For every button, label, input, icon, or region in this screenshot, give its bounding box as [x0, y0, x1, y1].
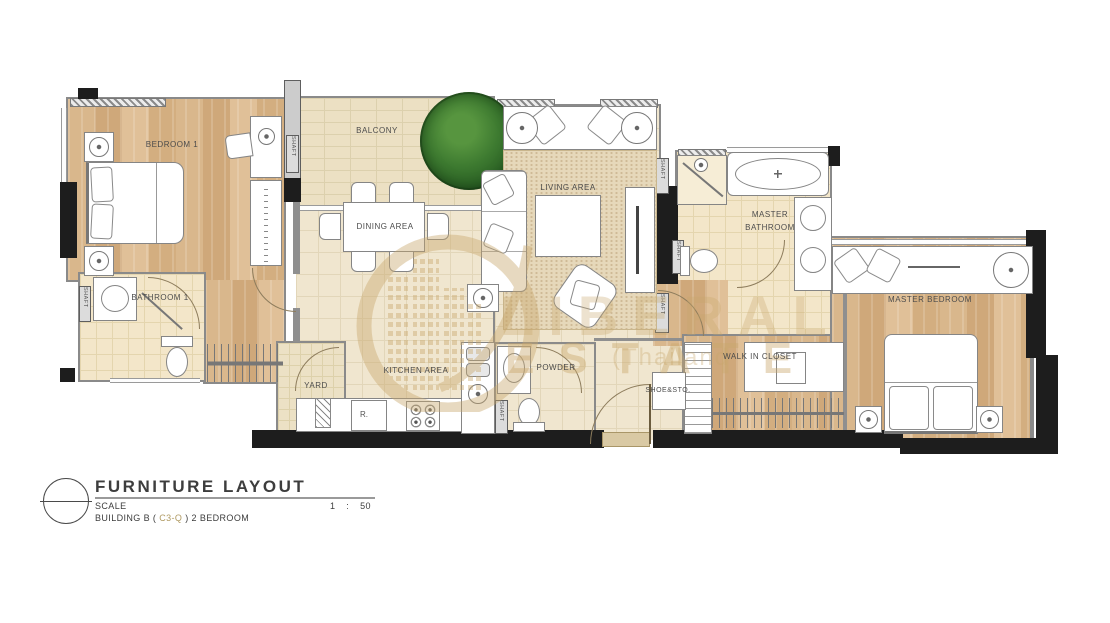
- tv-screen: [636, 206, 639, 274]
- table-lamp: [89, 137, 109, 157]
- desk-lamp: [258, 128, 275, 145]
- wall-mass-bottom: [900, 438, 1052, 454]
- bed-linen-line: [885, 382, 977, 383]
- room-label-powder: POWDER: [537, 363, 576, 372]
- bed-linen-line: [156, 163, 157, 243]
- room-label-living: LIVING AREA: [540, 183, 595, 192]
- room-label-master-bedroom: MASTER BEDROOM: [888, 295, 972, 304]
- shaft-label: SHAFT: [290, 136, 296, 157]
- kitchen-sink: [466, 363, 490, 377]
- dining-chair: [389, 182, 414, 203]
- toilet-tank: [161, 336, 193, 347]
- wall-mass-right: [1036, 355, 1058, 454]
- dining-chair: [351, 251, 376, 272]
- coffee-table: [535, 195, 601, 257]
- pillow: [889, 386, 929, 430]
- wall: [594, 338, 682, 341]
- shaft-box: SHAFT: [286, 135, 299, 173]
- table-lamp: [859, 410, 878, 429]
- wall-mass: [828, 146, 840, 166]
- floor-plan-canvas: SHAFT SHAFT SHAFT SHAFT SHAFT SHAFT: [0, 0, 1110, 623]
- shaft-box: SHAFT: [79, 286, 91, 322]
- refrigerator-label: R.: [360, 410, 368, 419]
- wardrobe-hanging-symbol: [264, 184, 268, 262]
- wall: [293, 308, 300, 342]
- wall-mass: [284, 178, 301, 202]
- kitchen-sink: [466, 347, 490, 361]
- room-label-bedroom1: BEDROOM 1: [146, 140, 199, 149]
- wall-mass-bottom: [252, 430, 604, 448]
- drawing-title: FURNITURE LAYOUT: [95, 477, 306, 497]
- side-table-round: [506, 112, 538, 144]
- title-block-symbol: [43, 478, 89, 524]
- dining-chair: [319, 213, 341, 240]
- wall: [293, 200, 300, 274]
- sink-basin: [800, 205, 826, 231]
- bedroom1-window: [61, 108, 67, 186]
- pillow: [90, 203, 114, 239]
- wall-mass: [60, 368, 75, 382]
- toilet-tank: [680, 246, 690, 276]
- shaft-label: SHAFT: [659, 159, 665, 180]
- wall-mass: [78, 88, 98, 99]
- room-label-bathroom1: BATHROOM 1: [131, 293, 188, 302]
- toilet-bowl: [166, 347, 188, 377]
- room-label-walk-in-closet: WALK IN CLOSET: [723, 352, 797, 361]
- building-info: BUILDING B ( C3-Q ) 2 BEDROOM: [95, 513, 249, 523]
- closet-hanging-rail: [712, 398, 844, 428]
- room-label-master-bathroom-1: MASTER: [752, 210, 788, 219]
- table-lamp: [980, 410, 999, 429]
- shower-head: [694, 158, 708, 172]
- room-label-dining: DINING AREA: [356, 222, 413, 231]
- sink-basin: [800, 247, 826, 273]
- hob-single: [468, 384, 488, 404]
- hatched-wall: [70, 98, 166, 107]
- side-table-round: [621, 112, 653, 144]
- pillow: [933, 386, 973, 430]
- toilet-tank: [513, 422, 545, 432]
- room-label-balcony: BALCONY: [356, 126, 398, 135]
- yard-rack: [315, 398, 331, 428]
- sink-basin: [503, 353, 525, 383]
- toilet-bowl: [690, 249, 718, 273]
- shaft-label: SHAFT: [498, 401, 504, 422]
- bathtub-drain-icon: [774, 170, 782, 178]
- dining-chair: [351, 182, 376, 203]
- desk-chair: [224, 132, 253, 159]
- closet-hanging-rail: [207, 344, 283, 382]
- table-lamp: [89, 251, 109, 271]
- master-bedroom-window: [831, 239, 1033, 245]
- building-suffix: ) 2 BEDROOM: [182, 513, 249, 523]
- shaft-box: SHAFT: [495, 400, 508, 434]
- title-rule: [95, 497, 375, 499]
- dining-chair: [389, 251, 414, 272]
- room-label-yard: YARD: [304, 381, 328, 390]
- bathroom1-window: [110, 378, 200, 383]
- sink-basin: [101, 285, 129, 312]
- seat-decor: [908, 266, 960, 268]
- wall-mass: [60, 182, 77, 258]
- scale-label: SCALE: [95, 501, 127, 511]
- dining-chair: [427, 213, 449, 240]
- room-label-shoe-storage: SHOE&STO.: [645, 387, 690, 394]
- shaft-box: SHAFT: [655, 158, 669, 194]
- table-lamp: [473, 288, 493, 308]
- refrigerator-box: [351, 400, 387, 431]
- building-prefix: BUILDING B (: [95, 513, 159, 523]
- pillow: [90, 166, 114, 202]
- side-table-round: [993, 252, 1029, 288]
- tv-console: [625, 187, 655, 293]
- scale-value: 1 : 50: [330, 501, 371, 511]
- shaft-label: SHAFT: [82, 287, 88, 308]
- building-code: C3-Q: [159, 513, 182, 523]
- room-label-master-bathroom-2: BATHROOM: [745, 223, 795, 232]
- desk: [250, 116, 282, 178]
- stove: [406, 401, 440, 431]
- room-label-kitchen: KITCHEN AREA: [384, 366, 449, 375]
